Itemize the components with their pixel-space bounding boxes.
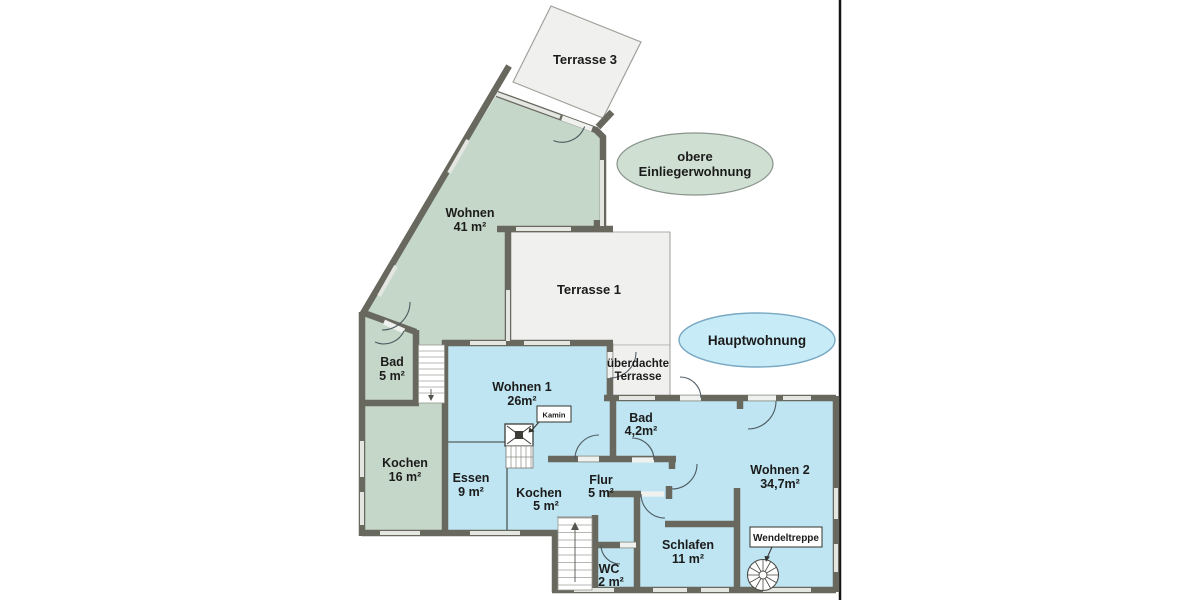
spiral-staircase-icon bbox=[748, 560, 779, 591]
kochen-og-name: Kochen bbox=[382, 456, 428, 470]
floor-plan-page: Kamin Wendeltreppe Terrasse 3 Wohnen 41 … bbox=[0, 0, 1200, 600]
kochen-og-area: 16 m² bbox=[389, 470, 422, 484]
fireplace-icon bbox=[505, 424, 533, 446]
kochen-eg-area: 5 m² bbox=[533, 499, 559, 513]
fireplace-grid-icon bbox=[506, 446, 533, 468]
bad-eg-name: Bad bbox=[629, 411, 653, 425]
bad-og-name: Bad bbox=[380, 355, 404, 369]
wc-area: 2 m² bbox=[598, 575, 624, 589]
main-unit-badge: Hauptwohnung bbox=[679, 313, 835, 367]
bad-og-area: 5 m² bbox=[379, 369, 405, 383]
flur-name: Flur bbox=[589, 473, 613, 487]
wendeltreppe-label: Wendeltreppe bbox=[753, 533, 819, 544]
stairs-lower-icon bbox=[558, 518, 592, 590]
covered-terrace-name-line2: Terrasse bbox=[614, 371, 661, 383]
upper-unit-badge-line1: obere bbox=[677, 149, 712, 164]
wohnen1-area: 26m² bbox=[507, 394, 536, 408]
floor-plan-canvas: Kamin Wendeltreppe Terrasse 3 Wohnen 41 … bbox=[0, 0, 1200, 600]
schlafen-area: 11 m² bbox=[672, 552, 704, 566]
terrasse1-label: Terrasse 1 bbox=[557, 282, 621, 297]
terrasse3-label: Terrasse 3 bbox=[553, 52, 617, 67]
upper-unit-badge-line2: Einliegerwohnung bbox=[639, 164, 752, 179]
wohnen-og-name: Wohnen bbox=[445, 206, 494, 220]
stairs-upper-icon bbox=[419, 345, 445, 403]
kochen-eg-name: Kochen bbox=[516, 486, 562, 500]
wohnen1-name: Wohnen 1 bbox=[492, 380, 552, 394]
upper-unit-badge: obere Einliegerwohnung bbox=[617, 133, 773, 195]
covered-terrace-name-line1: überdachte bbox=[607, 358, 669, 370]
essen-name: Essen bbox=[453, 471, 490, 485]
kamin-label: Kamin bbox=[543, 411, 566, 420]
wc-name: WC bbox=[599, 562, 620, 576]
main-unit-badge-label: Hauptwohnung bbox=[708, 333, 806, 348]
wohnen2-area: 34,7m² bbox=[760, 477, 800, 491]
schlafen-name: Schlafen bbox=[662, 538, 714, 552]
bad-eg-area: 4,2m² bbox=[625, 424, 658, 438]
wohnen-og-area: 41 m² bbox=[454, 220, 487, 234]
wohnen2-name: Wohnen 2 bbox=[750, 463, 810, 477]
essen-area: 9 m² bbox=[458, 485, 484, 499]
flur-area: 5 m² bbox=[588, 486, 614, 500]
